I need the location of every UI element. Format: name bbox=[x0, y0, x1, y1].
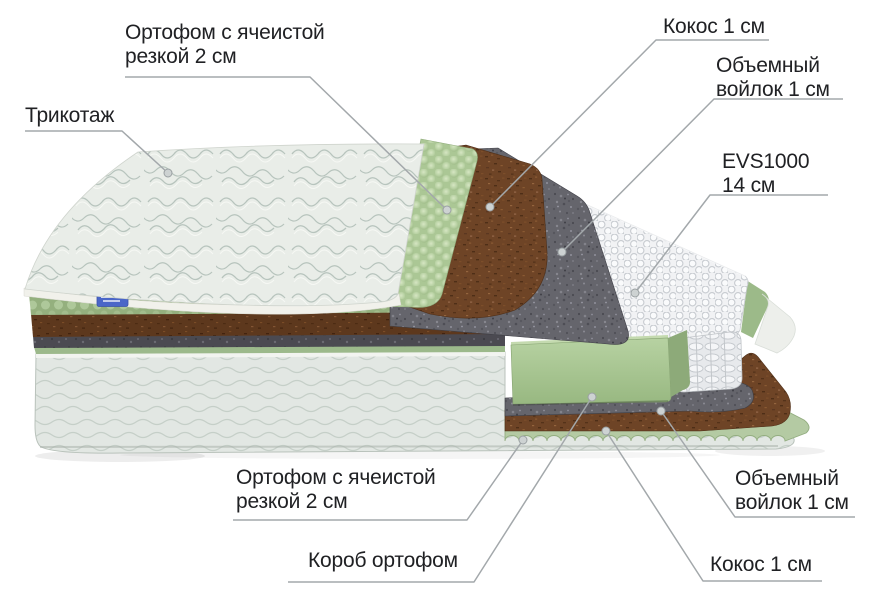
dot-voilok-top bbox=[558, 248, 566, 256]
dot-kokos-bottom bbox=[602, 427, 610, 435]
dot-evs bbox=[631, 289, 639, 297]
label-ortofom-top: Ортофом с ячеистой резкой 2 см bbox=[125, 21, 325, 69]
foam-box-side bbox=[668, 330, 690, 397]
dot-ortofom-top bbox=[443, 206, 451, 214]
label-kokos-top: Кокос 1 см bbox=[663, 15, 765, 39]
label-evs: EVS1000 14 см bbox=[722, 150, 809, 198]
dot-kokos-top bbox=[486, 203, 494, 211]
label-korob: Короб ортофом bbox=[308, 549, 458, 573]
dot-voilok-bottom bbox=[657, 407, 665, 415]
base-box-bottom-seam bbox=[40, 446, 778, 447]
label-trikotazh: Трикотаж bbox=[25, 104, 114, 128]
label-voilok-bottom: Объемный войлок 1 см bbox=[735, 467, 849, 515]
label-kokos-bottom: Кокос 1 см bbox=[710, 553, 812, 577]
dot-ortofom-bottom bbox=[519, 436, 527, 444]
mattress-layers-diagram: Трикотаж Ортофом с ячеистой резкой 2 см … bbox=[0, 0, 874, 599]
dot-trikotazh bbox=[164, 169, 172, 177]
dot-korob bbox=[588, 393, 596, 401]
quilt-top-sheet bbox=[25, 144, 424, 306]
label-ortofom-bottom: Ортофом с ячеистой резкой 2 см bbox=[236, 466, 436, 514]
label-voilok-top: Объемный войлок 1 см bbox=[716, 54, 830, 102]
